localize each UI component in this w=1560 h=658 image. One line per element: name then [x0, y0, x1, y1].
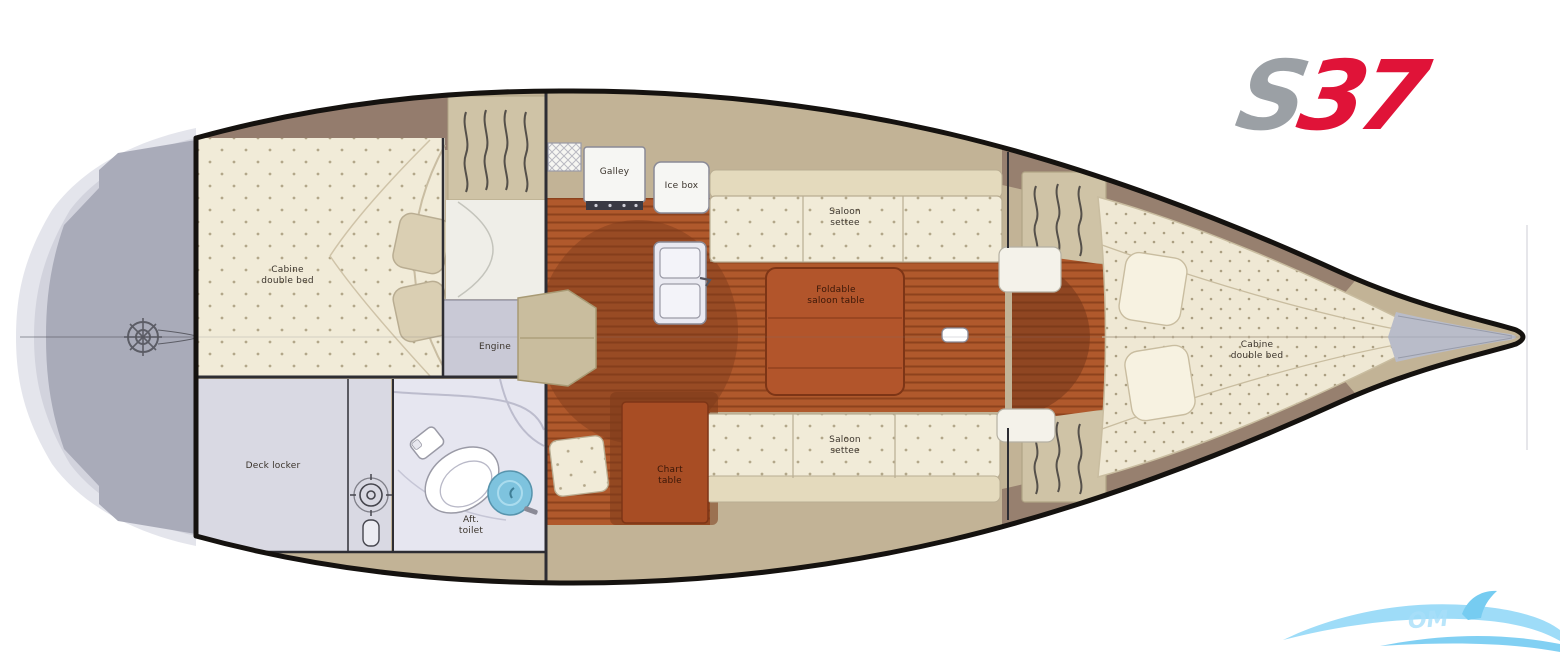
- logo-number: 37: [1291, 40, 1430, 152]
- boat-floorplan: Cabine double bed Engine Deck locker Aft…: [0, 0, 1560, 658]
- saloon-settee-bottom: [705, 414, 1000, 502]
- model-logo: S37: [1227, 40, 1548, 160]
- saloon-table: [766, 268, 904, 395]
- hanging-locker-aft: [448, 96, 546, 200]
- galley-hatch-icon: [548, 143, 581, 171]
- aft-passage: [446, 200, 546, 299]
- door-panel: [999, 247, 1061, 292]
- stern-platform: [16, 128, 196, 546]
- companionway-steps: [518, 290, 596, 386]
- deck-hatch-icon: [363, 520, 379, 546]
- galley-stove-unit: [584, 147, 645, 202]
- deck-locker-room: [197, 379, 392, 553]
- chart-table-seat: [549, 435, 609, 497]
- chart-table: [622, 402, 708, 523]
- watermark-text: OM: [1407, 607, 1449, 635]
- aft-cabin-bed: [197, 138, 453, 376]
- aft-toilet-room: [394, 379, 546, 553]
- door-panel: [997, 409, 1055, 442]
- galley-sink-icon: [654, 242, 710, 324]
- ice-box-unit: [654, 162, 709, 213]
- door-slider-icon: [942, 328, 968, 342]
- saloon-settee-top: [710, 170, 1002, 262]
